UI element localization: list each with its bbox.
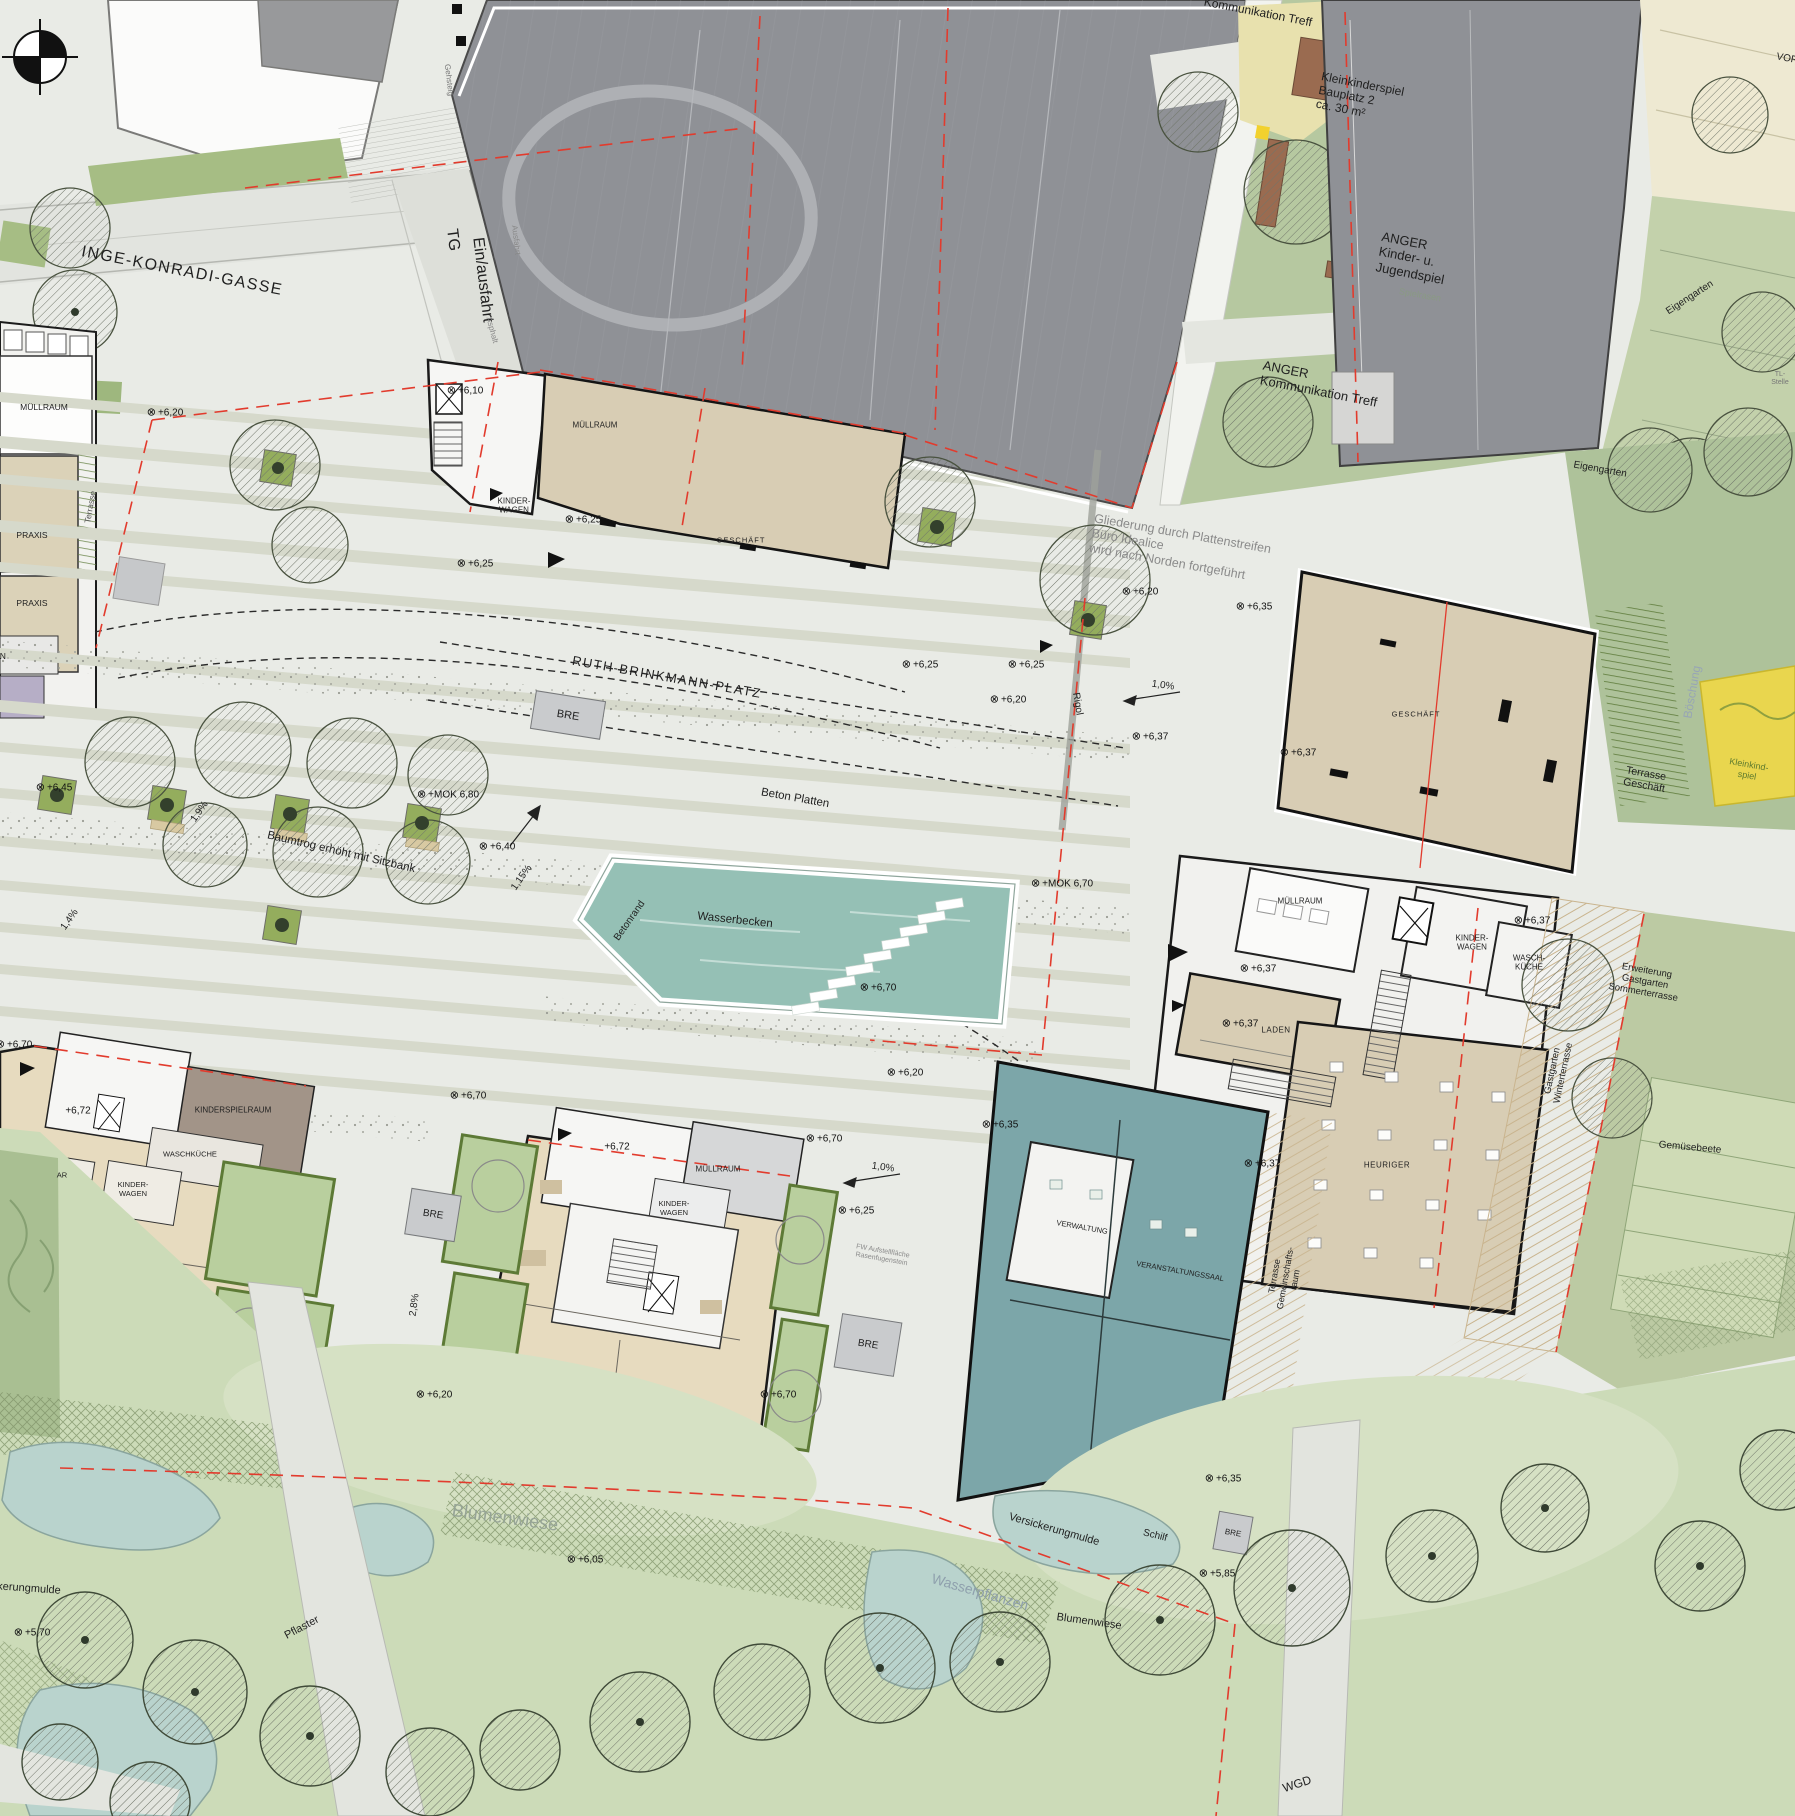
survey-marker-icon: ⊗ — [1244, 1159, 1253, 1170]
survey-marker-icon: ⊗ — [0, 1040, 5, 1051]
survey-marker-icon: ⊗ — [36, 783, 45, 794]
spot-672-b: +6,72 — [604, 1142, 629, 1153]
survey-marker-icon: ⊗ — [567, 1555, 576, 1566]
survey-marker-icon: ⊗ — [1280, 748, 1289, 759]
survey-marker-icon: ⊗ — [1205, 1474, 1214, 1485]
survey-marker-icon: ⊗ — [14, 1628, 23, 1639]
spot-635-c: ⊗+6,35 — [1205, 1474, 1242, 1485]
survey-marker-icon: ⊗ — [417, 790, 426, 801]
spot-mok-680: ⊗+MOK 6,80 — [417, 790, 479, 801]
survey-marker-icon: ⊗ — [860, 983, 869, 994]
spot-670-e: ⊗+6,70 — [0, 1040, 32, 1051]
spot-620-e: ⊗+6,20 — [416, 1390, 453, 1401]
spot-635-a: ⊗+6,35 — [1236, 602, 1273, 613]
spot-670-c: ⊗+6,70 — [806, 1134, 843, 1145]
survey-marker-icon: ⊗ — [760, 1390, 769, 1401]
survey-marker-icon: ⊗ — [565, 515, 574, 526]
survey-marker-icon: ⊗ — [416, 1390, 425, 1401]
survey-marker-icon: ⊗ — [982, 1120, 991, 1131]
survey-marker-icon: ⊗ — [1222, 1019, 1231, 1030]
spot-605: ⊗+6,05 — [567, 1555, 604, 1566]
survey-marker-icon: ⊗ — [887, 1068, 896, 1079]
site-plan-graphics — [0, 0, 1795, 1816]
survey-marker-icon: ⊗ — [1240, 964, 1249, 975]
survey-marker-icon: ⊗ — [1008, 660, 1017, 671]
survey-marker-icon: ⊗ — [1199, 1569, 1208, 1580]
survey-marker-icon: ⊗ — [1122, 587, 1131, 598]
spot-637-f: ⊗+6,37 — [1132, 732, 1169, 743]
spot-625-d: ⊗+6,25 — [1008, 660, 1045, 671]
site-plan: INGE-KONRADI-GASSE TG Ein/ausfahrt Gehst… — [0, 0, 1795, 1816]
survey-marker-icon: ⊗ — [1031, 879, 1040, 890]
spot-620-a: ⊗+6,20 — [147, 408, 184, 419]
survey-marker-icon: ⊗ — [450, 1091, 459, 1102]
spot-625-e: ⊗+6,25 — [838, 1206, 875, 1217]
survey-marker-icon: ⊗ — [457, 559, 466, 570]
survey-marker-icon: ⊗ — [838, 1206, 847, 1217]
spot-625-a: ⊗+6,25 — [565, 515, 602, 526]
spot-635-b: ⊗+6,35 — [982, 1120, 1019, 1131]
survey-marker-icon: ⊗ — [147, 408, 156, 419]
spot-637-e: ⊗+6,37 — [1514, 916, 1551, 927]
spot-670-d: ⊗+6,70 — [760, 1390, 797, 1401]
survey-marker-icon: ⊗ — [447, 386, 456, 397]
spot-570: ⊗+5,70 — [14, 1628, 51, 1639]
spot-610: ⊗+6,10 — [447, 386, 484, 397]
survey-marker-icon: ⊗ — [1514, 916, 1523, 927]
spot-637-a: ⊗+6,37 — [1280, 748, 1317, 759]
spot-637-c: ⊗+6,37 — [1222, 1019, 1259, 1030]
spot-672-a: +6,72 — [65, 1106, 90, 1117]
survey-marker-icon: ⊗ — [902, 660, 911, 671]
spot-637-b: ⊗+6,37 — [1240, 964, 1277, 975]
survey-marker-icon: ⊗ — [990, 695, 999, 706]
spot-620-c: ⊗+6,20 — [990, 695, 1027, 706]
spot-640: ⊗+6,40 — [479, 842, 516, 853]
spot-670-a: ⊗+6,70 — [860, 983, 897, 994]
spot-625-b: ⊗+6,25 — [457, 559, 494, 570]
spot-585: ⊗+5,85 — [1199, 1569, 1236, 1580]
survey-marker-icon: ⊗ — [806, 1134, 815, 1145]
spot-637-d: ⊗+6,37 — [1244, 1159, 1281, 1170]
spot-mok-670: ⊗+MOK 6,70 — [1031, 879, 1093, 890]
spot-670-b: ⊗+6,70 — [450, 1091, 487, 1102]
survey-marker-icon: ⊗ — [1132, 732, 1141, 743]
spot-620-d: ⊗+6,20 — [887, 1068, 924, 1079]
survey-marker-icon: ⊗ — [1236, 602, 1245, 613]
spot-645: ⊗+6,45 — [36, 783, 73, 794]
spot-625-c: ⊗+6,25 — [902, 660, 939, 671]
spot-620-b: ⊗+6,20 — [1122, 587, 1159, 598]
survey-marker-icon: ⊗ — [479, 842, 488, 853]
